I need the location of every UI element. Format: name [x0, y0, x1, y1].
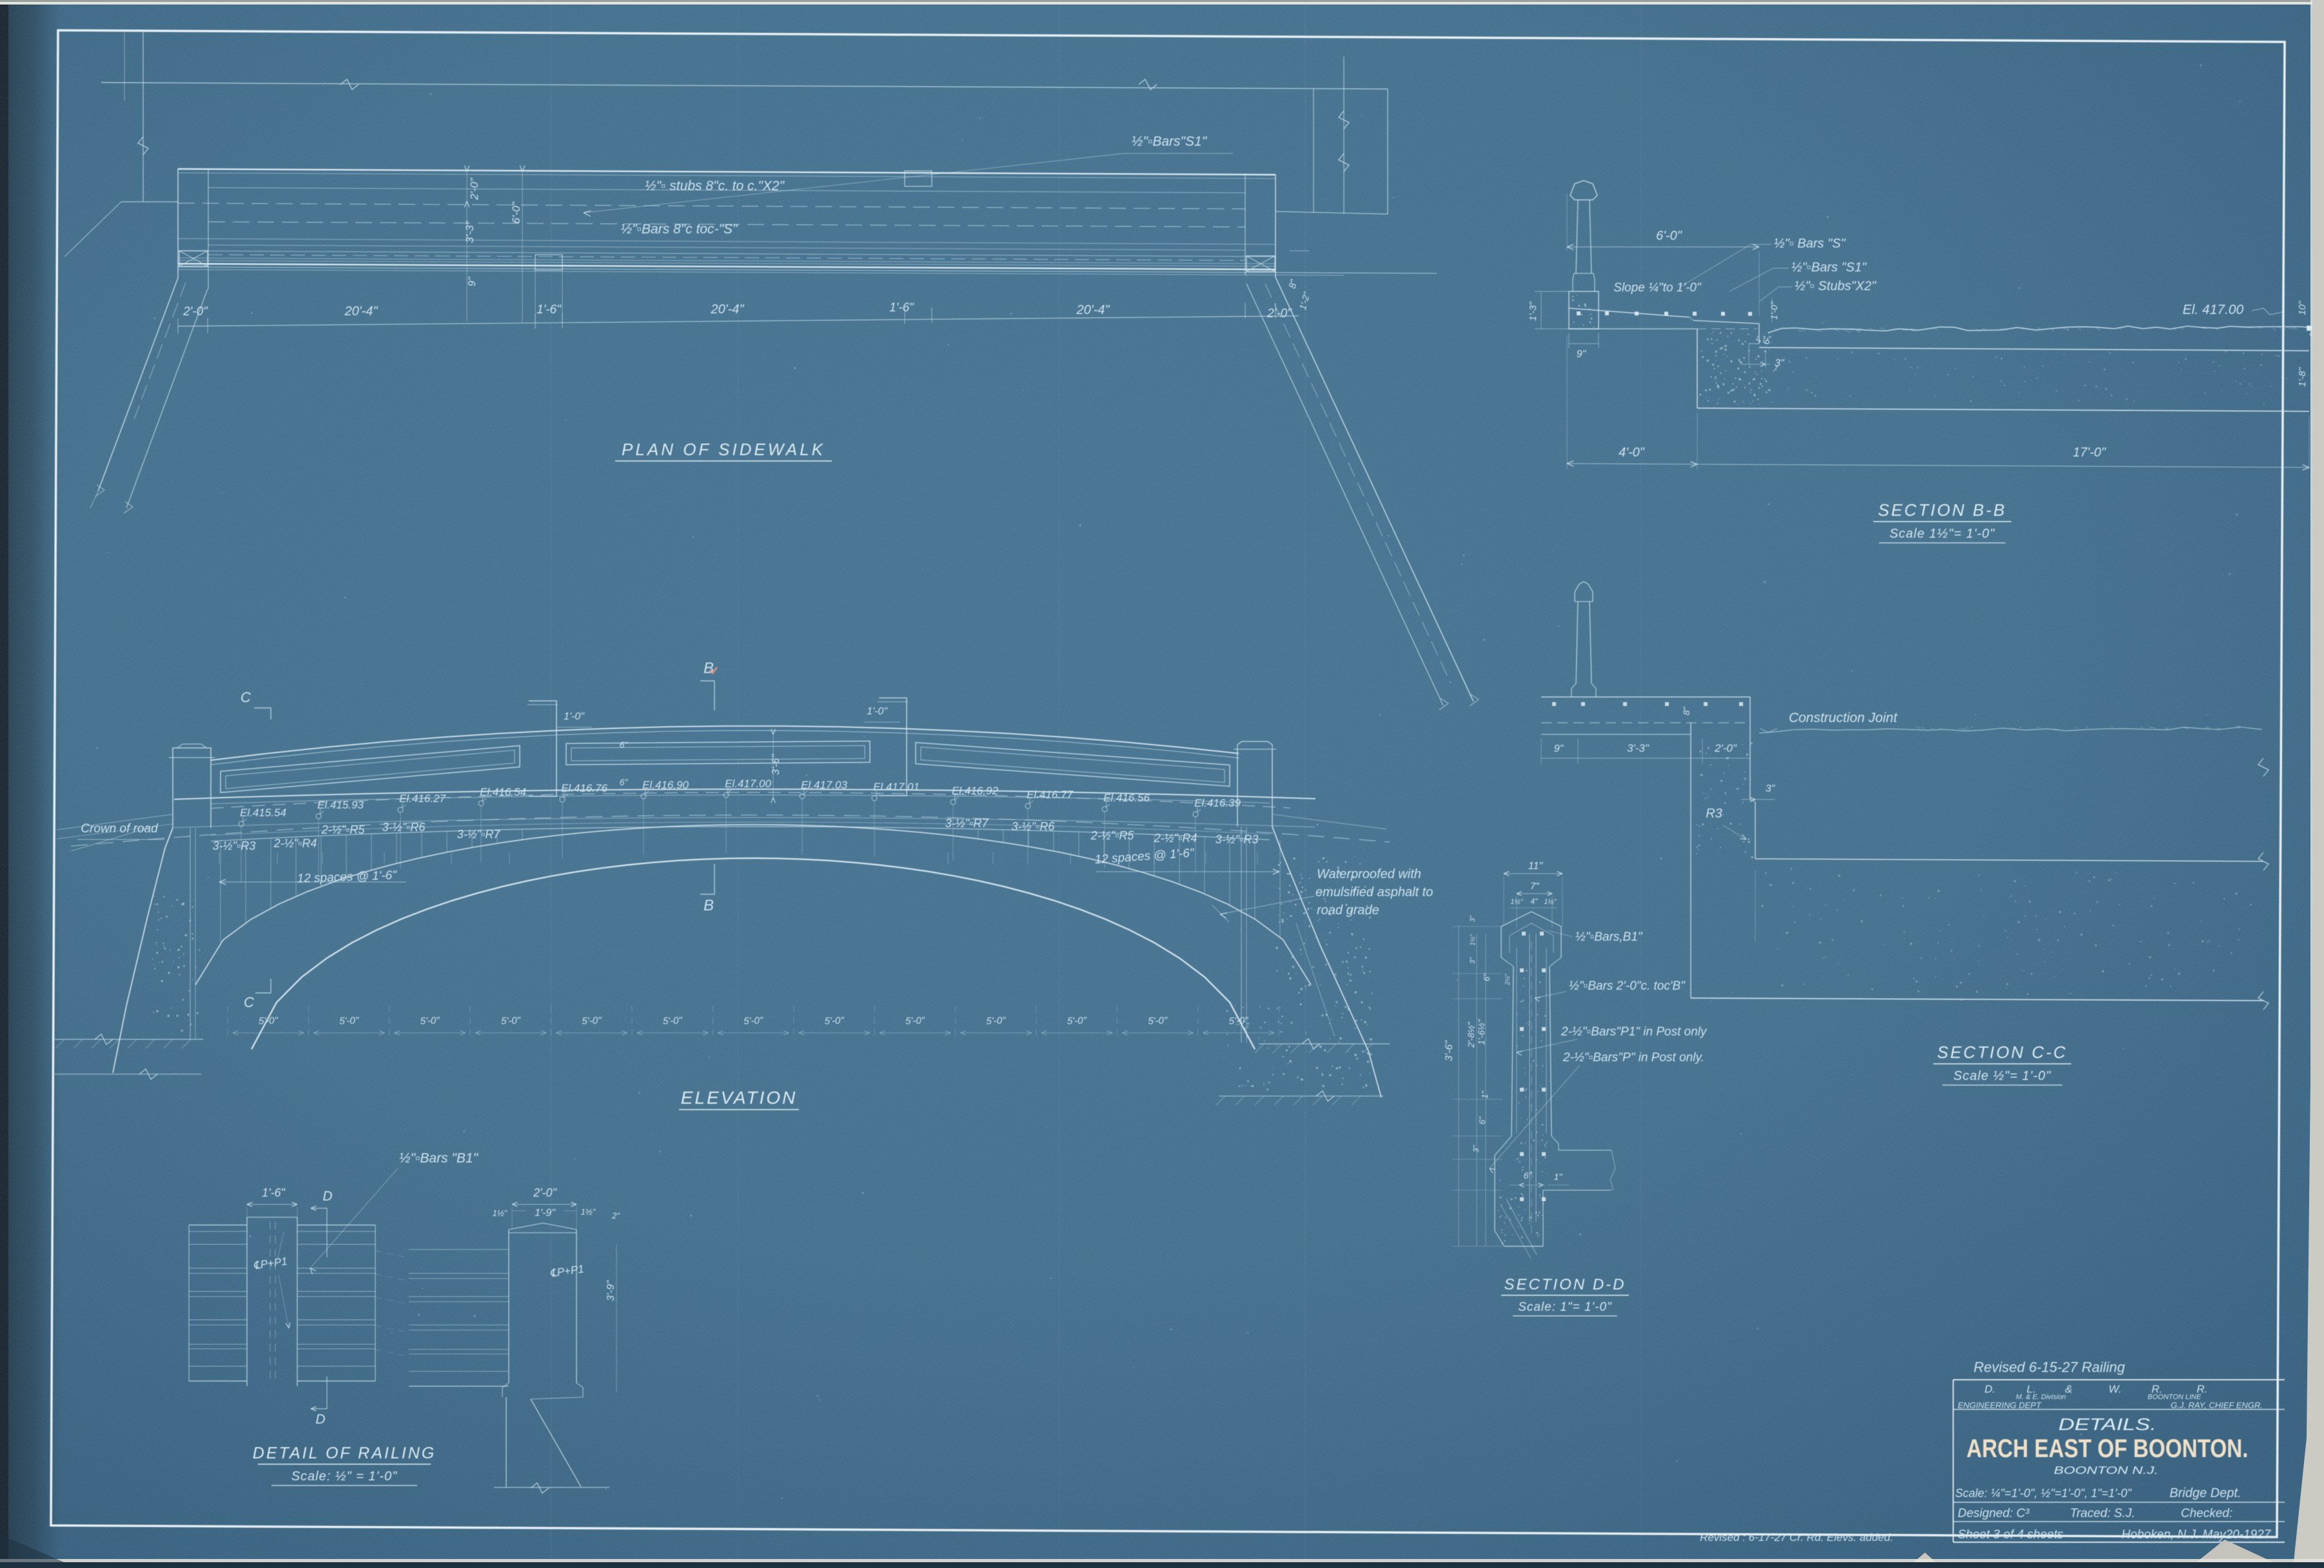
svg-text:El.416.27: El.416.27 — [399, 792, 446, 805]
svg-text:Revised : 6-17-27 Cr. Rd. Ele: Revised : 6-17-27 Cr. Rd. Elevs. added. — [1700, 1531, 1893, 1543]
svg-text:6": 6" — [1761, 336, 1771, 345]
svg-text:2-½"▫Bars"P1" in Post only: 2-½"▫Bars"P1" in Post only — [1561, 1025, 1708, 1039]
svg-text:9": 9" — [1554, 743, 1564, 754]
svg-text:2'-8½": 2'-8½" — [1466, 1021, 1476, 1048]
svg-text:5'-0": 5'-0" — [582, 1015, 602, 1026]
svg-text:1": 1" — [1554, 1171, 1563, 1182]
svg-text:1'-6": 1'-6" — [537, 303, 562, 317]
svg-text:2-½"▫Bars"P" in Post only.: 2-½"▫Bars"P" in Post only. — [1562, 1051, 1704, 1064]
svg-text:3-½"▫R3: 3-½"▫R3 — [1216, 833, 1259, 846]
svg-text:1'-6½": 1'-6½" — [1476, 1019, 1486, 1045]
svg-text:2'-0": 2'-0" — [533, 1186, 557, 1199]
svg-text:5'-0": 5'-0" — [259, 1015, 279, 1026]
svg-text:4": 4" — [1531, 897, 1539, 906]
svg-text:Crown of road: Crown of road — [81, 822, 159, 836]
svg-text:6": 6" — [1482, 973, 1492, 981]
svg-text:El.416.54: El.416.54 — [480, 786, 526, 798]
svg-text:3": 3" — [1766, 783, 1776, 794]
svg-text:BOONTON N.J.: BOONTON N.J. — [2054, 1464, 2158, 1476]
svg-text:3'-3": 3'-3" — [1627, 742, 1649, 754]
svg-text:El.415.54: El.415.54 — [240, 807, 286, 819]
svg-text:17'-0": 17'-0" — [2073, 446, 2107, 460]
svg-text:5'-0": 5'-0" — [420, 1015, 440, 1026]
svg-text:El.416.56: El.416.56 — [1103, 792, 1150, 804]
svg-text:D.: D. — [1985, 1383, 1996, 1395]
svg-text:20'-4": 20'-4" — [1076, 303, 1110, 317]
svg-text:1½": 1½" — [493, 1208, 508, 1218]
svg-text:SECTION B-B: SECTION B-B — [1878, 500, 2006, 520]
svg-text:1'-3": 1'-3" — [1528, 301, 1539, 321]
svg-text:SECTION C-C: SECTION C-C — [1937, 1043, 2067, 1062]
svg-text:ARCH EAST OF BOONTON.: ARCH EAST OF BOONTON. — [1967, 1435, 2249, 1463]
svg-text:5'-0": 5'-0" — [339, 1015, 359, 1026]
svg-text:Checked:: Checked: — [2181, 1507, 2232, 1520]
svg-text:½"▫Bars,B1": ½"▫Bars,B1" — [1575, 930, 1643, 944]
svg-text:½"▫Bars "S1": ½"▫Bars "S1" — [1791, 260, 1867, 275]
svg-text:11": 11" — [1528, 861, 1544, 872]
svg-text:6": 6" — [1524, 1170, 1533, 1181]
svg-text:2-½"▫R4: 2-½"▫R4 — [1154, 832, 1197, 845]
svg-text:DETAIL OF RAILING: DETAIL OF RAILING — [253, 1444, 436, 1462]
svg-text:Scale: 1"= 1'-0": Scale: 1"= 1'-0" — [1518, 1300, 1612, 1314]
svg-text:El.417.00: El.417.00 — [725, 778, 771, 790]
svg-text:El.417.01: El.417.01 — [873, 781, 920, 793]
svg-text:1½": 1½" — [1544, 898, 1557, 906]
svg-text:5'-0": 5'-0" — [743, 1015, 763, 1026]
svg-text:2'-0": 2'-0" — [1714, 742, 1737, 754]
svg-text:DETAILS.: DETAILS. — [2058, 1415, 2156, 1434]
svg-text:2'-0": 2'-0" — [182, 305, 208, 318]
svg-text:El.417.03: El.417.03 — [801, 779, 847, 791]
svg-text:B: B — [704, 897, 714, 914]
svg-text:2": 2" — [611, 1211, 620, 1220]
svg-text:4'-0": 4'-0" — [1619, 446, 1645, 460]
svg-text:10": 10" — [2297, 300, 2308, 315]
svg-text:Construction Joint: Construction Joint — [1789, 710, 1898, 725]
svg-text:&: & — [2065, 1383, 2072, 1395]
svg-text:PLAN OF SIDEWALK: PLAN OF SIDEWALK — [622, 440, 825, 459]
svg-text:Hoboken, N.J. May20-1927.: Hoboken, N.J. May20-1927. — [2122, 1528, 2274, 1542]
svg-text:5'-0": 5'-0" — [663, 1015, 683, 1026]
svg-text:3'-6": 3'-6" — [771, 754, 782, 775]
svg-text:SECTION D-D: SECTION D-D — [1504, 1276, 1626, 1293]
svg-text:2'-0": 2'-0" — [1266, 307, 1292, 320]
svg-text:R3: R3 — [1706, 807, 1722, 821]
svg-text:9": 9" — [1577, 349, 1587, 360]
svg-text:5'-0": 5'-0" — [501, 1015, 521, 1026]
svg-text:8": 8" — [1681, 707, 1691, 716]
svg-text:1'-0": 1'-0" — [564, 711, 585, 722]
svg-text:9": 9" — [467, 276, 478, 286]
svg-text:C: C — [241, 689, 251, 705]
svg-text:El. 417.00: El. 417.00 — [2183, 302, 2244, 317]
svg-text:Slope ¼"to 1'-0": Slope ¼"to 1'-0" — [1613, 281, 1702, 295]
svg-text:El.416.39: El.416.39 — [1194, 797, 1241, 809]
svg-text:6": 6" — [1477, 1116, 1487, 1124]
svg-text:7": 7" — [1530, 881, 1539, 892]
svg-text:3": 3" — [1469, 957, 1477, 964]
svg-text:ENGINEERING DEPT: ENGINEERING DEPT — [1958, 1400, 2042, 1410]
svg-text:5'-0": 5'-0" — [824, 1015, 844, 1026]
svg-text:6'-0": 6'-0" — [1656, 229, 1682, 243]
svg-text:1": 1" — [1480, 1090, 1490, 1099]
svg-text:½"▫ stubs 8"c. to c."X2": ½"▫ stubs 8"c. to c."X2" — [645, 179, 785, 193]
svg-text:3'-9": 3'-9" — [606, 1280, 616, 1301]
svg-text:6": 6" — [620, 740, 629, 750]
svg-text:Scale ½"= 1'-0": Scale ½"= 1'-0" — [1953, 1069, 2051, 1083]
svg-text:Designed: C³: Designed: C³ — [1958, 1507, 2030, 1520]
svg-text:D: D — [315, 1412, 325, 1427]
svg-text:2-½"▫R5: 2-½"▫R5 — [1090, 829, 1135, 842]
svg-text:5'-0": 5'-0" — [986, 1015, 1006, 1026]
svg-text:5'-0": 5'-0" — [1067, 1015, 1087, 1026]
svg-text:1'-6": 1'-6" — [262, 1186, 286, 1199]
svg-text:El.416.92: El.416.92 — [952, 785, 998, 797]
svg-text:1½": 1½" — [1470, 934, 1477, 946]
svg-text:3-½"▫R7: 3-½"▫R7 — [457, 828, 501, 841]
svg-text:Scale: ½" = 1'-0": Scale: ½" = 1'-0" — [291, 1469, 398, 1484]
svg-text:ELEVATION: ELEVATION — [681, 1088, 798, 1108]
svg-text:Bridge Dept.: Bridge Dept. — [2169, 1486, 2241, 1500]
svg-text:1½": 1½" — [581, 1207, 596, 1217]
svg-text:B: B — [704, 660, 714, 677]
svg-text:6'-0": 6'-0" — [510, 201, 522, 224]
svg-text:5'-0": 5'-0" — [905, 1015, 925, 1026]
svg-text:3-½"▫R6: 3-½"▫R6 — [382, 821, 426, 834]
svg-text:emulsified asphalt to: emulsified asphalt to — [1315, 885, 1433, 899]
svg-text:3-½"▫R7: 3-½"▫R7 — [945, 817, 989, 830]
svg-text:5'-0": 5'-0" — [1148, 1015, 1168, 1026]
svg-text:1½": 1½" — [1510, 898, 1523, 906]
svg-text:C: C — [244, 994, 254, 1010]
svg-text:3'-3": 3'-3" — [464, 220, 476, 243]
svg-text:Revised 6-15-27 Railing: Revised 6-15-27 Railing — [1974, 1359, 2126, 1375]
svg-text:Traced: S.J.: Traced: S.J. — [2070, 1507, 2135, 1520]
svg-text:2-½"▫R5: 2-½"▫R5 — [321, 823, 366, 836]
svg-text:½"▫Bars "B1": ½"▫Bars "B1" — [399, 1151, 479, 1166]
svg-text:3-½"▫R6: 3-½"▫R6 — [1012, 820, 1056, 833]
svg-text:1'-6": 1'-6" — [889, 301, 914, 315]
svg-text:Scale 1½"= 1'-0": Scale 1½"= 1'-0" — [1889, 527, 1995, 541]
svg-text:½"▫ Bars "S": ½"▫ Bars "S" — [1774, 237, 1846, 251]
svg-text:Sheet 3 of 4 sheets: Sheet 3 of 4 sheets — [1958, 1528, 2063, 1542]
svg-text:6": 6" — [620, 777, 629, 787]
svg-text:Waterproofed with: Waterproofed with — [1317, 867, 1421, 881]
svg-text:Scale: ¼"=1'-0", ½"=1'-0", 1"=: Scale: ¼"=1'-0", ½"=1'-0", 1"=1'-0" — [1955, 1487, 2132, 1500]
svg-text:D: D — [322, 1189, 332, 1204]
svg-text:3": 3" — [1472, 1145, 1481, 1153]
svg-text:3-½"▫R3: 3-½"▫R3 — [213, 839, 256, 852]
svg-text:½"▫Bars 8"c toc-"S": ½"▫Bars 8"c toc-"S" — [621, 222, 738, 237]
svg-text:2½": 2½" — [1504, 974, 1512, 986]
svg-text:3": 3" — [1469, 915, 1477, 922]
svg-text:El.416.90: El.416.90 — [642, 779, 689, 791]
svg-text:El.416.77: El.416.77 — [1027, 789, 1073, 801]
svg-text:road grade: road grade — [1317, 903, 1379, 917]
svg-text:2-½"▫R4: 2-½"▫R4 — [273, 837, 317, 850]
svg-text:1'-8": 1'-8" — [2297, 367, 2308, 387]
svg-text:G.J. RAY, CHIEF ENGR.: G.J. RAY, CHIEF ENGR. — [2171, 1400, 2263, 1410]
svg-text:W.: W. — [2109, 1383, 2122, 1395]
svg-text:El.415.93: El.415.93 — [317, 799, 364, 811]
svg-text:2'-0": 2'-0" — [468, 177, 480, 201]
svg-text:3'-6": 3'-6" — [1444, 1040, 1455, 1061]
svg-text:1'-9": 1'-9" — [535, 1208, 556, 1219]
svg-text:20'-4": 20'-4" — [711, 302, 745, 317]
svg-text:½"▫Bars 2'-0"c. toc'B": ½"▫Bars 2'-0"c. toc'B" — [1569, 979, 1686, 993]
svg-text:½"▫ Stubs"X2": ½"▫ Stubs"X2" — [1795, 279, 1876, 293]
svg-text:20'-4": 20'-4" — [344, 304, 379, 318]
svg-text:1'-0": 1'-0" — [867, 706, 888, 717]
svg-text:El.416.76: El.416.76 — [561, 782, 607, 794]
svg-text:1'-0": 1'-0" — [1769, 301, 1779, 320]
svg-text:½"▫Bars"S1": ½"▫Bars"S1" — [1132, 134, 1208, 149]
